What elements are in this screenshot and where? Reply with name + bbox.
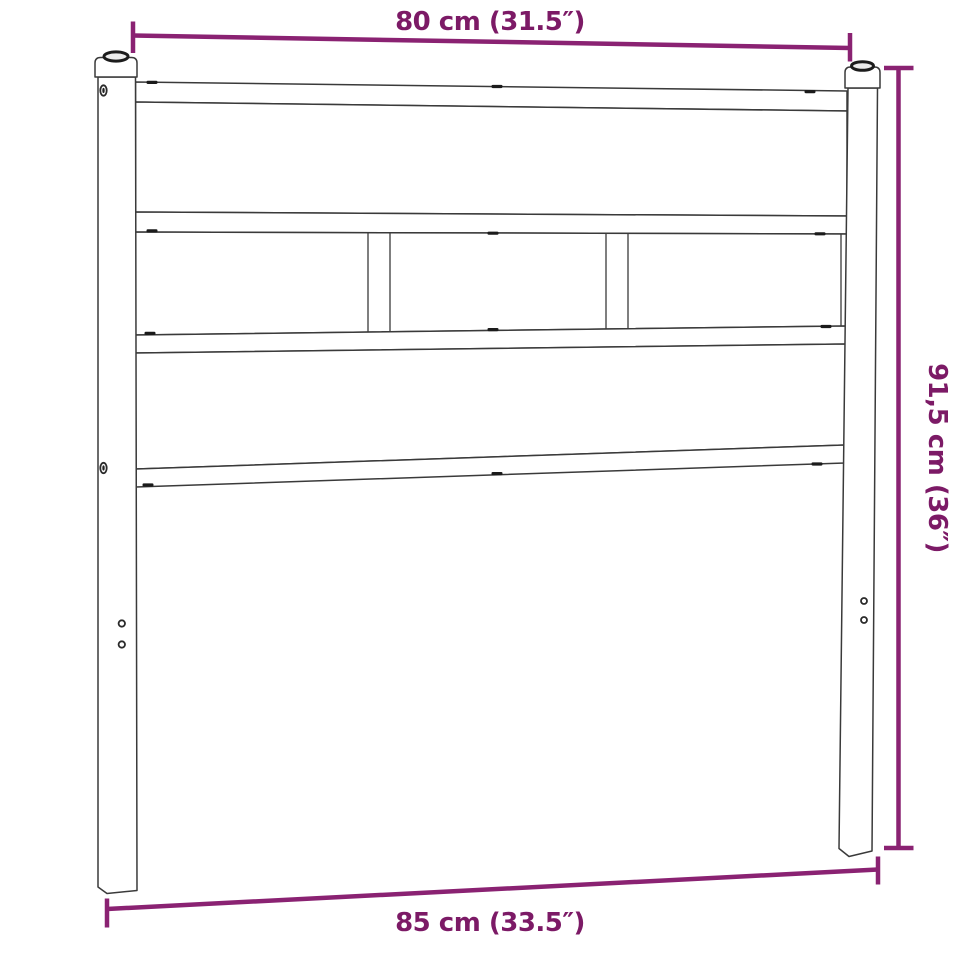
left-post-hole: [119, 620, 125, 626]
bottom-width-dimension: 85 cm (33.5″): [107, 857, 878, 939]
right-dimension-label: 91,5 cm (36″): [922, 363, 952, 553]
right-post-hole: [861, 598, 867, 604]
screw-mark: [805, 90, 816, 93]
screw-mark: [488, 328, 499, 331]
mid-upper-rail: [136, 212, 848, 234]
left-post-hole-pin: [102, 88, 104, 93]
screw-mark: [815, 232, 826, 235]
screw-mark: [143, 483, 154, 486]
left-post-hole: [119, 641, 125, 647]
left-post: [95, 52, 137, 894]
left-post-hole-pin: [102, 465, 104, 470]
screw-mark: [821, 325, 832, 328]
headboard-line-drawing: 80 cm (31.5″) 91,5 cm (36″) 85 cm (33.5″…: [0, 0, 955, 955]
right-post-hole: [861, 617, 867, 623]
screw-mark: [488, 232, 499, 235]
dimension-line: [107, 870, 878, 910]
right-height-dimension: 91,5 cm (36″): [884, 68, 952, 848]
left-post-cap-dome: [104, 52, 128, 61]
screw-mark: [492, 85, 503, 88]
left-post-body: [98, 77, 137, 894]
screw-mark: [147, 229, 158, 232]
right-post-cap-dome: [852, 62, 874, 71]
headboard-frame: [136, 82, 848, 487]
bottom-dimension-label: 85 cm (33.5″): [395, 908, 585, 938]
top-width-dimension: 80 cm (31.5″): [133, 7, 850, 62]
dimension-line: [133, 36, 850, 49]
screw-mark: [492, 472, 503, 475]
top-dimension-label: 80 cm (31.5″): [395, 7, 585, 37]
slat-section: [136, 232, 848, 335]
product-dimension-diagram: 80 cm (31.5″) 91,5 cm (36″) 85 cm (33.5″…: [0, 0, 955, 955]
screw-mark: [812, 462, 823, 465]
screw-mark: [147, 81, 158, 84]
screw-mark: [145, 332, 156, 335]
upper-wide-panel: [136, 102, 848, 216]
